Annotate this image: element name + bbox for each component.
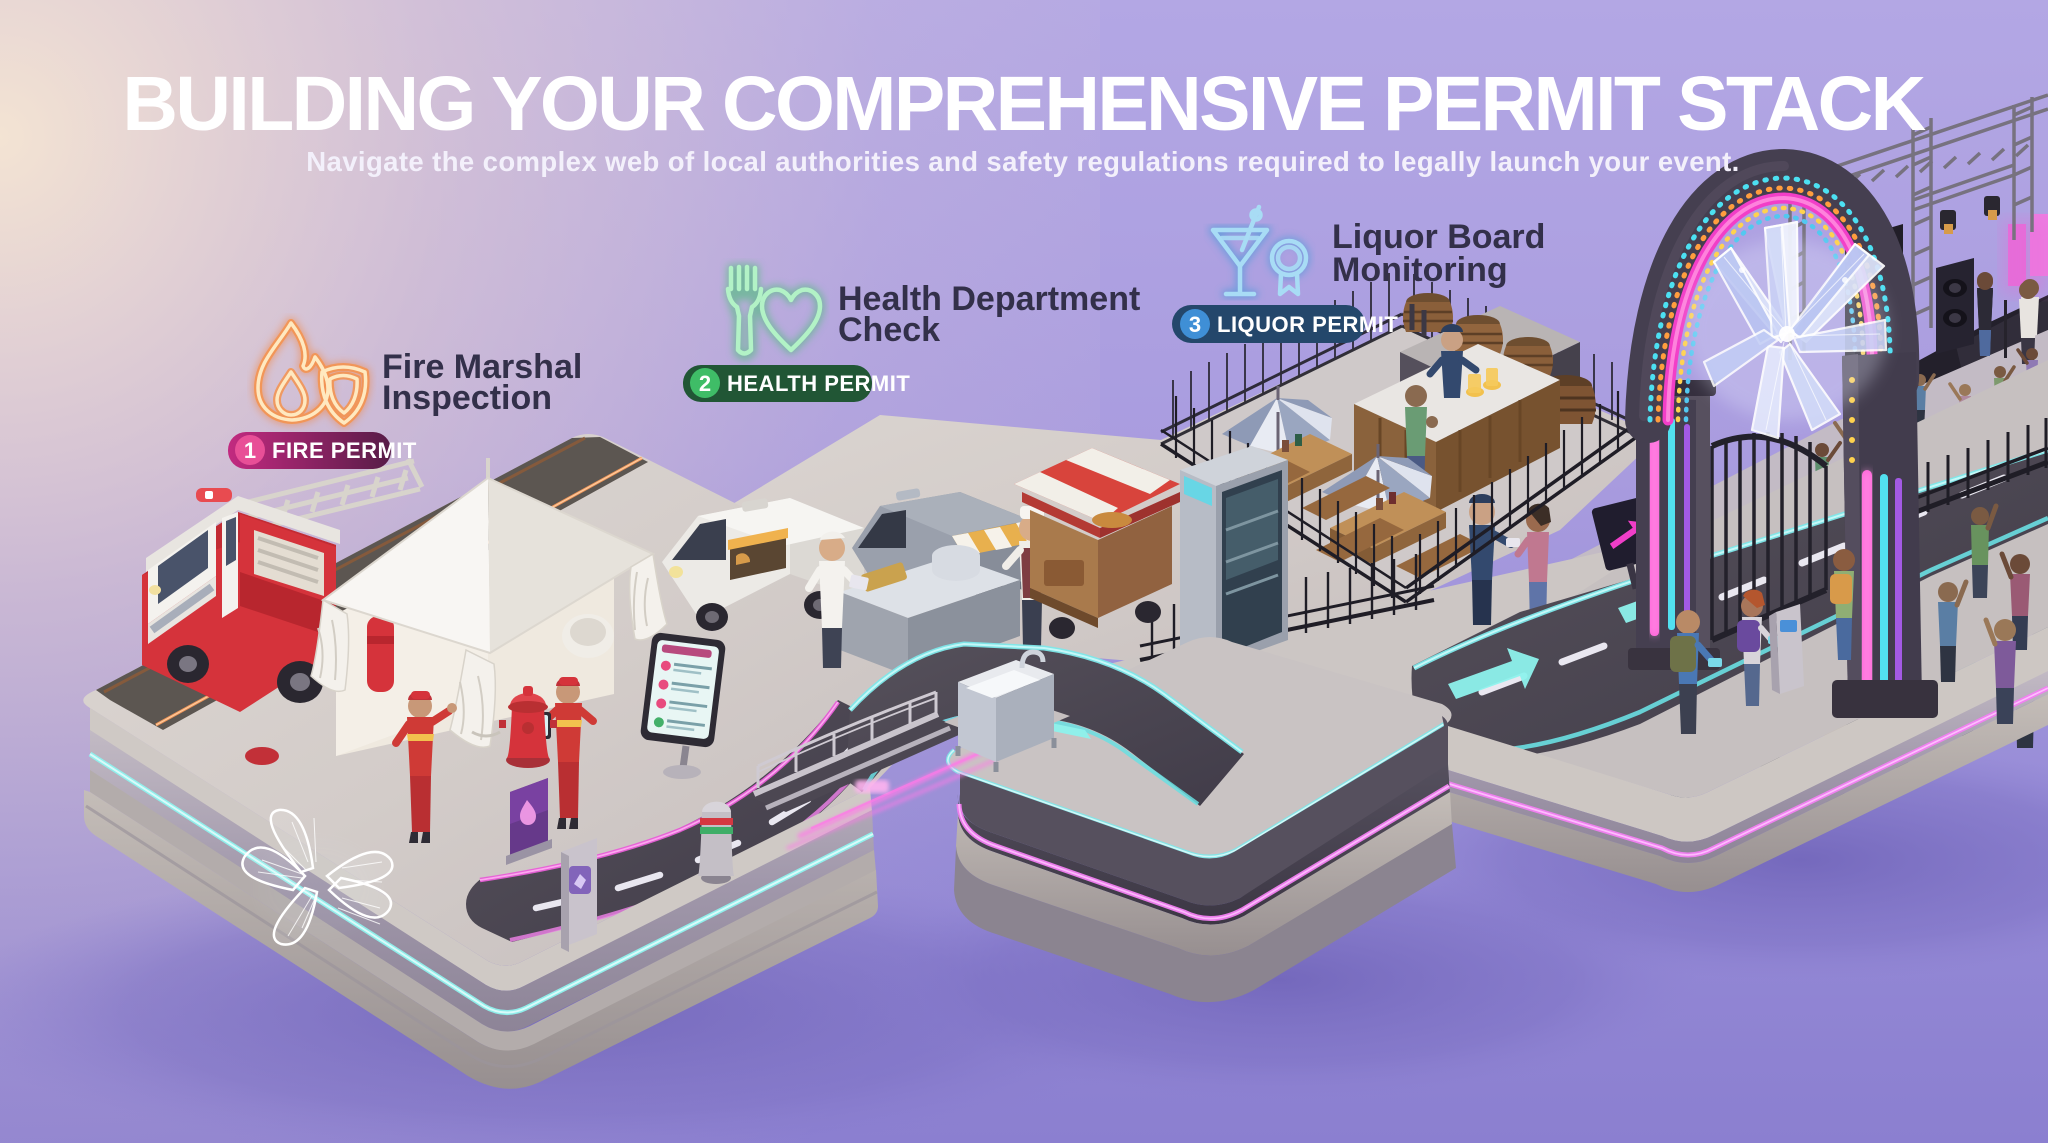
svg-text:HEALTH PERMIT: HEALTH PERMIT xyxy=(727,371,910,396)
svg-text:FIRE PERMIT: FIRE PERMIT xyxy=(272,438,417,463)
svg-text:Inspection: Inspection xyxy=(382,379,552,417)
svg-text:BUILDING YOUR COMPREHENSIVE PE: BUILDING YOUR COMPREHENSIVE PERMIT STACK xyxy=(122,61,1925,147)
svg-text:LIQUOR PERMIT: LIQUOR PERMIT xyxy=(1217,312,1398,337)
svg-text:Check: Check xyxy=(838,311,940,349)
svg-text:3: 3 xyxy=(1189,312,1201,337)
svg-text:Monitoring: Monitoring xyxy=(1332,251,1508,289)
svg-text:1: 1 xyxy=(244,438,256,463)
svg-text:Navigate the complex web of lo: Navigate the complex web of local author… xyxy=(306,146,1739,177)
svg-text:2: 2 xyxy=(699,371,711,396)
